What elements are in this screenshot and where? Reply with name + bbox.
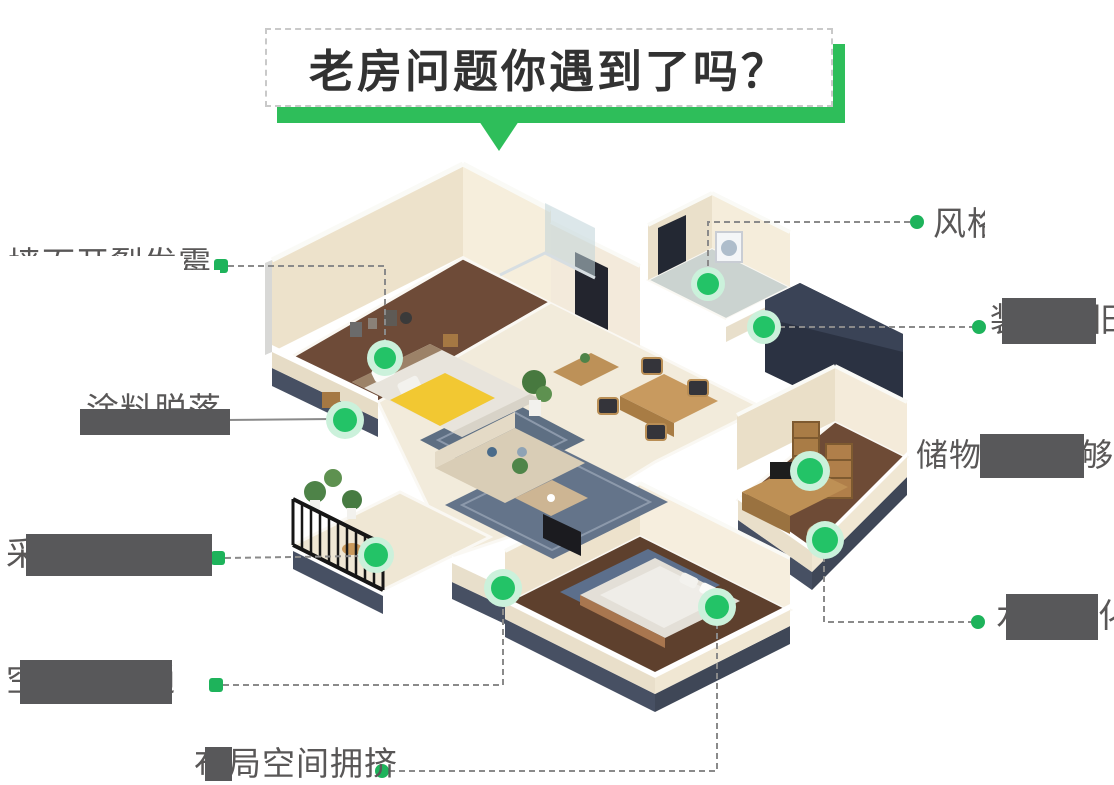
nightstand xyxy=(443,334,458,347)
hotspot-poor-lighting[interactable] xyxy=(358,537,394,573)
mask-box xyxy=(1002,298,1096,344)
bullet-circle xyxy=(910,215,924,229)
dining-chair xyxy=(646,424,666,440)
mask-box xyxy=(1006,594,1098,640)
hotspot-decor-outdated[interactable] xyxy=(747,310,781,344)
problem-label-decor-outdated: 装修陈旧 xyxy=(990,302,1114,338)
plant xyxy=(342,490,362,510)
mask-box xyxy=(80,409,230,435)
mask-box xyxy=(980,434,1084,478)
bullet-square xyxy=(209,678,223,692)
bullet-circle xyxy=(972,320,986,334)
infographic-canvas: 老房问题你遇到了吗？ xyxy=(0,0,1114,785)
leader-ventilation xyxy=(223,603,503,685)
hotspot-wall-mildew[interactable] xyxy=(367,340,403,376)
wall-art xyxy=(350,322,362,337)
dining-chair xyxy=(598,398,618,414)
hotspot-style-outdated[interactable] xyxy=(691,267,725,301)
mask-box xyxy=(985,200,1114,248)
hotspot-poor-ventilation[interactable] xyxy=(484,569,522,607)
hotspot-layout-crowded[interactable] xyxy=(698,588,736,626)
mask-box xyxy=(26,534,212,576)
problem-label-poor-ventilation: 空气不流通 xyxy=(6,662,176,698)
mask-box xyxy=(180,270,220,286)
dining-chair xyxy=(642,358,662,374)
mask-box xyxy=(205,747,232,781)
problem-label-style-outdated: 风格老旧 xyxy=(933,206,1069,242)
problem-label-storage-lacking: 储物空间不够 xyxy=(916,438,1114,473)
problem-label-layout-crowded: 布局空间拥挤 xyxy=(194,746,398,782)
plant xyxy=(324,469,342,487)
bullet-circle xyxy=(971,615,985,629)
mask-box xyxy=(20,660,172,704)
bullet-square xyxy=(211,551,225,565)
leader-paint-peeling xyxy=(224,419,333,420)
plant xyxy=(512,458,528,474)
problem-label-poor-lighting: 采光不足 xyxy=(6,536,142,572)
dining-chair xyxy=(688,380,708,396)
wall-art xyxy=(368,318,377,329)
leader-utilities xyxy=(824,556,971,622)
hotspot-storage-lacking[interactable] xyxy=(790,451,830,491)
wall-clock xyxy=(400,312,412,324)
utility-fixtures xyxy=(716,232,742,262)
plant xyxy=(304,481,326,503)
problem-label-utilities-aging: 水电老化 xyxy=(996,598,1114,634)
problem-label-wall-mildew: 墙面开裂发霉 xyxy=(8,246,212,282)
mask-box xyxy=(8,256,184,284)
hotspot-paint-peeling[interactable] xyxy=(326,401,364,439)
problem-label-paint-peeling: 涂料脱落 xyxy=(86,392,222,428)
hotspot-utilities-aging[interactable] xyxy=(806,521,844,559)
